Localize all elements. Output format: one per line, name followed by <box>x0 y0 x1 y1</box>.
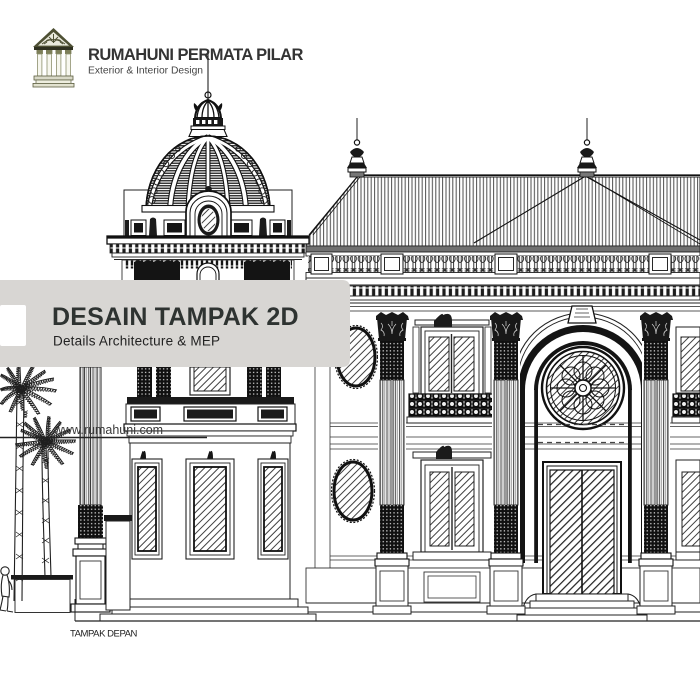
svg-text:Details Architecture & MEP: Details Architecture & MEP <box>53 334 220 349</box>
svg-text:www.rumahuni.com: www.rumahuni.com <box>53 423 163 437</box>
svg-text:TAMPAK DEPAN: TAMPAK DEPAN <box>70 629 138 640</box>
svg-text:Exterior & Interior Design: Exterior & Interior Design <box>88 66 203 77</box>
svg-text:DESAIN TAMPAK 2D: DESAIN TAMPAK 2D <box>52 303 299 331</box>
svg-text:RUMAHUNI PERMATA PILAR: RUMAHUNI PERMATA PILAR <box>88 46 304 64</box>
